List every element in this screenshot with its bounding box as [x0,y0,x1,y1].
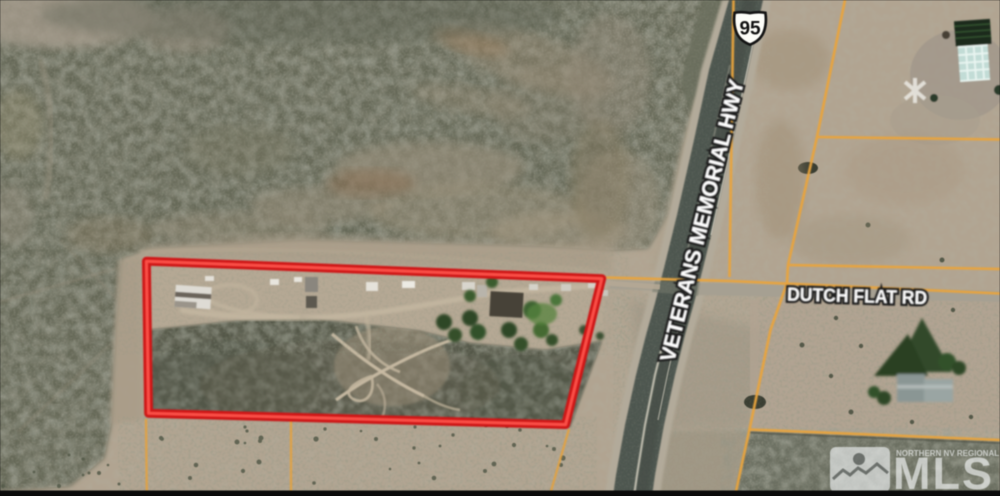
svg-text:95: 95 [739,19,761,40]
svg-text:MLS: MLS [893,448,994,496]
svg-text:DUTCH FLAT RD: DUTCH FLAT RD [787,285,927,309]
